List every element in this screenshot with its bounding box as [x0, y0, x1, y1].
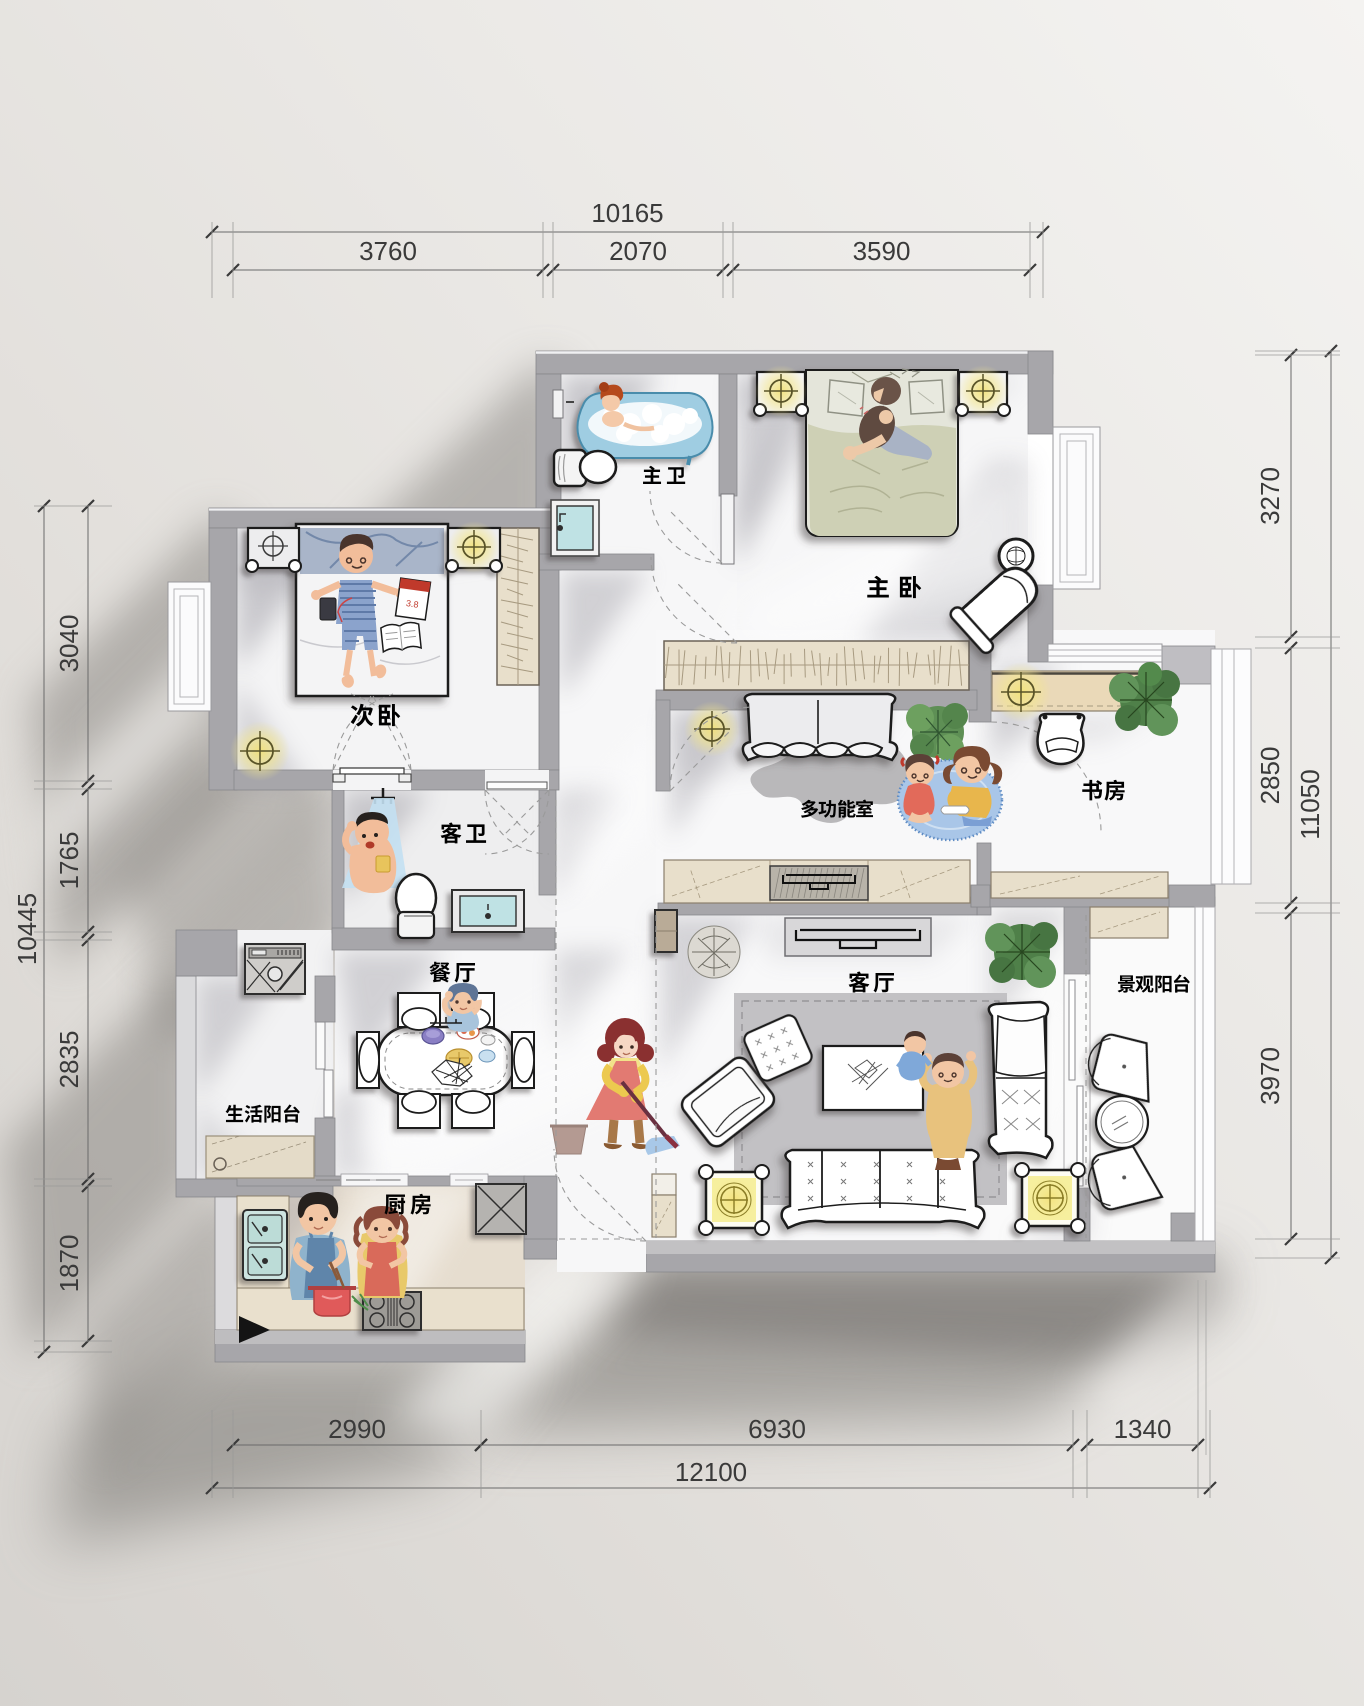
svg-text:3270: 3270: [1255, 467, 1285, 525]
svg-text:10445: 10445: [12, 893, 42, 965]
svg-text:3760: 3760: [359, 236, 417, 266]
svg-text:11050: 11050: [1295, 769, 1325, 839]
svg-text:2070: 2070: [609, 236, 667, 266]
svg-text:2850: 2850: [1255, 747, 1285, 805]
svg-text:1870: 1870: [54, 1235, 84, 1293]
svg-text:3.8: 3.8: [405, 598, 419, 610]
svg-text:1340: 1340: [1114, 1414, 1172, 1444]
svg-text:3970: 3970: [1255, 1047, 1285, 1105]
svg-text:12100: 12100: [675, 1457, 747, 1487]
svg-text:6930: 6930: [748, 1414, 806, 1444]
svg-text:3590: 3590: [853, 236, 911, 266]
svg-text:10165: 10165: [591, 198, 663, 228]
svg-text:2835: 2835: [54, 1031, 84, 1089]
svg-text:1765: 1765: [54, 832, 84, 890]
svg-text:3040: 3040: [54, 615, 84, 673]
svg-text:2990: 2990: [328, 1414, 386, 1444]
